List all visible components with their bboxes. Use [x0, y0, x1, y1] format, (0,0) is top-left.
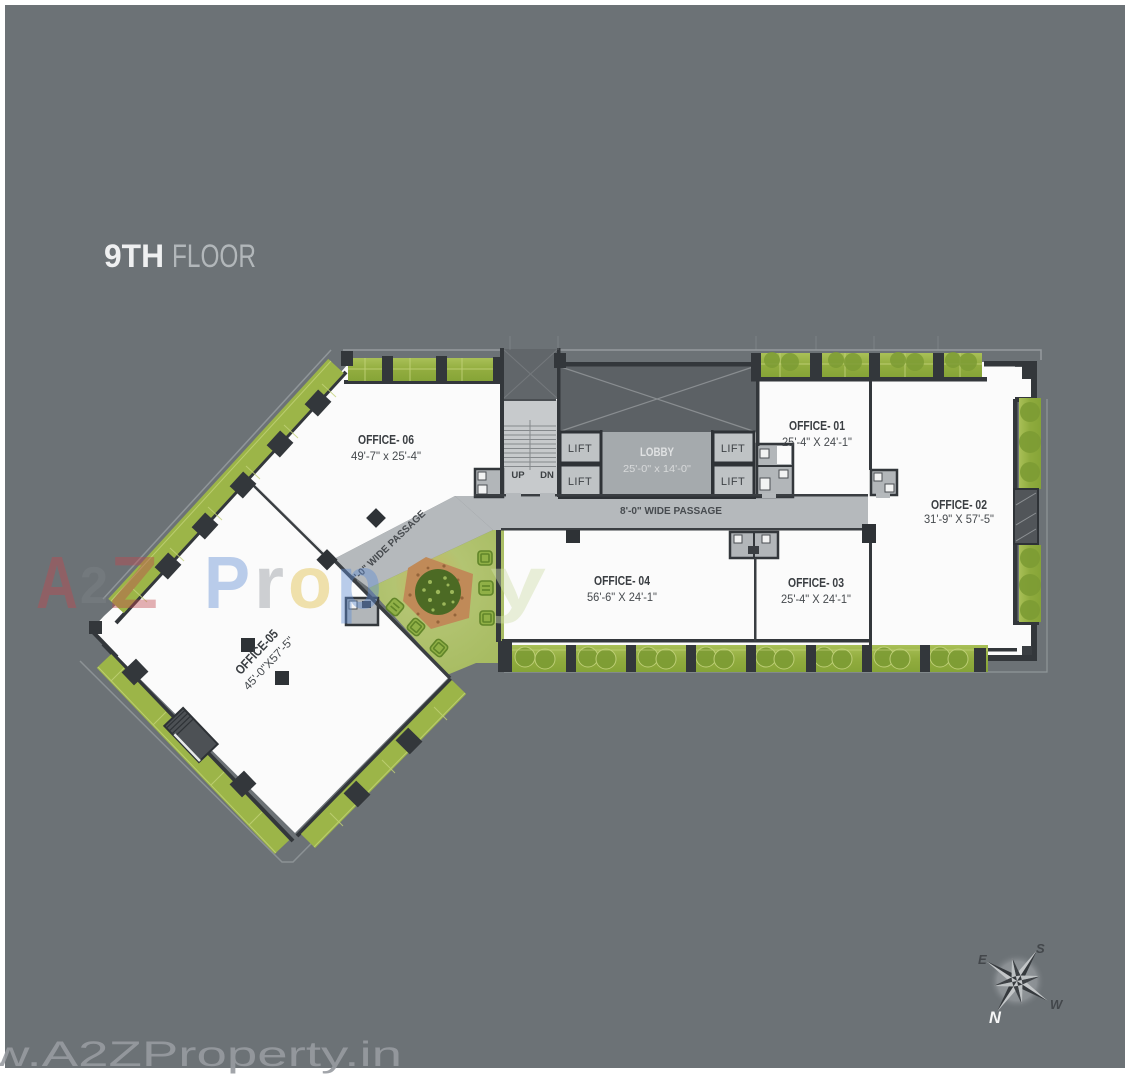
svg-text:o: o: [288, 541, 332, 624]
svg-text:31'-9" X 57'-5": 31'-9" X 57'-5": [924, 514, 994, 526]
svg-text:W: W: [1050, 997, 1064, 1012]
svg-text:OFFICE- 03: OFFICE- 03: [788, 575, 844, 590]
svg-text:OFFICE- 02: OFFICE- 02: [931, 497, 987, 512]
svg-text:N: N: [989, 1009, 1002, 1027]
svg-text:y: y: [490, 541, 546, 624]
svg-text:E: E: [978, 952, 987, 967]
svg-text:LIFT: LIFT: [568, 476, 592, 488]
svg-text:w.A2ZProperty.in: w.A2ZProperty.in: [0, 1035, 402, 1074]
svg-text:OFFICE- 01: OFFICE- 01: [789, 418, 845, 433]
svg-text:49'-7" x 25'-4": 49'-7" x 25'-4": [351, 451, 421, 463]
svg-text:UP: UP: [511, 470, 525, 481]
svg-text:LIFT: LIFT: [568, 443, 592, 455]
svg-text:OFFICE- 06: OFFICE- 06: [358, 432, 414, 447]
svg-text:r: r: [254, 541, 284, 624]
svg-text:DN: DN: [540, 470, 554, 481]
svg-text:FLOOR: FLOOR: [172, 238, 256, 274]
svg-text:25'-0" x 14'-0": 25'-0" x 14'-0": [623, 463, 691, 475]
svg-text:LIFT: LIFT: [721, 443, 745, 455]
svg-text:P: P: [204, 541, 250, 624]
svg-text:LIFT: LIFT: [721, 476, 745, 488]
svg-text:25'-4" X 24'-1": 25'-4" X 24'-1": [781, 594, 851, 606]
svg-text:Z: Z: [110, 541, 158, 624]
svg-text:A: A: [36, 541, 78, 624]
svg-text:9TH: 9TH: [104, 238, 164, 274]
svg-text:LOBBY: LOBBY: [640, 445, 674, 459]
svg-text:8'-0" WIDE PASSAGE: 8'-0" WIDE PASSAGE: [620, 505, 722, 517]
svg-text:2: 2: [80, 557, 108, 615]
svg-text:25'-4" X 24'-1": 25'-4" X 24'-1": [782, 437, 852, 449]
svg-text:S: S: [1036, 941, 1045, 956]
svg-text:OFFICE- 04: OFFICE- 04: [594, 573, 651, 588]
svg-text:56'-6" X 24'-1": 56'-6" X 24'-1": [587, 592, 657, 604]
svg-text:p: p: [336, 541, 382, 624]
